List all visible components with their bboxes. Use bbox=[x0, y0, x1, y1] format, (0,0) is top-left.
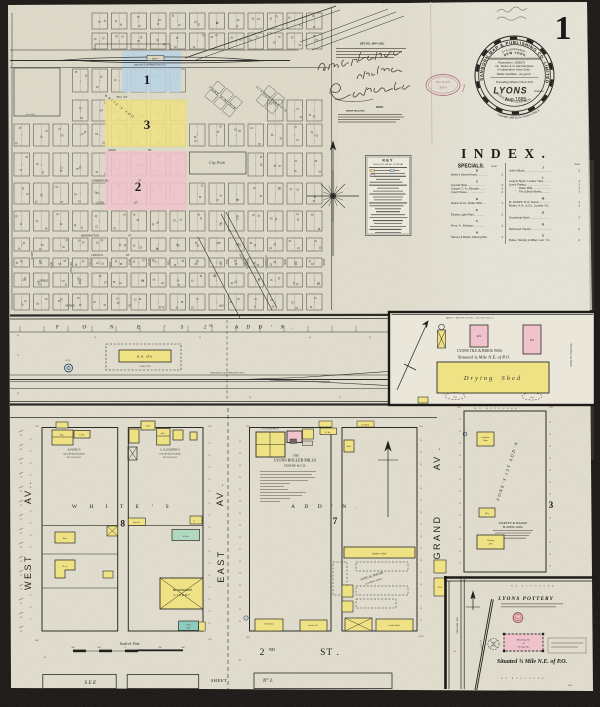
svg-text:25: 25 bbox=[459, 527, 461, 529]
svg-text:7: 7 bbox=[255, 135, 256, 137]
svg-text:25: 25 bbox=[420, 488, 422, 490]
svg-text:40: 40 bbox=[20, 617, 22, 619]
svg-text:25: 25 bbox=[209, 479, 211, 481]
svg-text:Lumber Shed: Lumber Shed bbox=[371, 553, 387, 556]
svg-text:W. Ho.: W. Ho. bbox=[325, 432, 331, 434]
svg-text:6: 6 bbox=[197, 135, 198, 137]
svg-text:8: 8 bbox=[177, 280, 178, 282]
svg-text:25: 25 bbox=[549, 542, 551, 544]
svg-text:E: E bbox=[476, 208, 478, 212]
svg-text:25: 25 bbox=[420, 524, 422, 526]
svg-text:5: 5 bbox=[216, 194, 217, 196]
svg-text:Kiln: Kiln bbox=[515, 618, 519, 620]
svg-text:3: 3 bbox=[60, 221, 61, 223]
svg-text:Kansas: Kansas bbox=[534, 89, 544, 93]
svg-text:Carpenter: Carpenter bbox=[481, 436, 490, 439]
svg-text:BELL: BELL bbox=[168, 258, 171, 265]
svg-text:25: 25 bbox=[420, 572, 422, 574]
svg-text:1: 1 bbox=[555, 10, 572, 47]
svg-text:25: 25 bbox=[209, 575, 211, 577]
svg-text:WALLACE & McPHERSON R.R.Co.: WALLACE & McPHERSON R.R.Co. bbox=[210, 372, 246, 375]
svg-text:PLANING MILL: PLANING MILL bbox=[503, 525, 524, 529]
svg-text:WATER FACILITIES.: WATER FACILITIES. bbox=[346, 110, 365, 113]
svg-text:750': 750' bbox=[208, 426, 213, 428]
svg-text:7: 7 bbox=[333, 516, 338, 526]
svg-text:6: 6 bbox=[99, 111, 100, 113]
svg-text:4: 4 bbox=[158, 21, 159, 23]
svg-text:25: 25 bbox=[239, 525, 241, 527]
svg-text:DEPOT: DEPOT bbox=[152, 59, 159, 61]
svg-text:Barn: Barn bbox=[63, 538, 67, 540]
svg-text:25: 25 bbox=[30, 571, 32, 573]
svg-text:25: 25 bbox=[420, 476, 422, 478]
svg-text:Planing: Planing bbox=[486, 540, 495, 542]
svg-text:A D D ’ N .: A D D ’ N . bbox=[291, 504, 361, 510]
svg-text:25: 25 bbox=[30, 439, 32, 441]
svg-text:4: 4 bbox=[138, 302, 139, 304]
svg-text:7: 7 bbox=[41, 221, 42, 223]
svg-text:A D D ’ N .: A D D ’ N . bbox=[234, 325, 297, 331]
svg-text:Situated ¾ Mile N.E. of P.O.: Situated ¾ Mile N.E. of P.O. bbox=[458, 355, 510, 360]
svg-text:7: 7 bbox=[99, 165, 100, 167]
svg-text:(SEE VOL. MAP of 88.): (SEE VOL. MAP of 88.) bbox=[360, 43, 385, 46]
svg-text:5: 5 bbox=[158, 280, 159, 282]
svg-text:B. Sto.: B. Sto. bbox=[183, 535, 190, 538]
svg-text:4: 4 bbox=[314, 302, 315, 304]
svg-text:750': 750' bbox=[419, 426, 424, 428]
svg-text:5: 5 bbox=[197, 21, 198, 23]
svg-text:4: 4 bbox=[294, 302, 295, 304]
svg-text:25: 25 bbox=[209, 539, 211, 541]
svg-text:2: 2 bbox=[138, 21, 139, 23]
svg-text:Moulding Rm: Moulding Rm bbox=[516, 639, 531, 642]
svg-text:Paint: Paint bbox=[185, 624, 191, 627]
svg-text:4: 4 bbox=[216, 135, 217, 137]
svg-text:Coal Shed: Coal Shed bbox=[361, 425, 369, 427]
svg-text:2: 2 bbox=[41, 135, 42, 137]
svg-text:3: 3 bbox=[197, 280, 198, 282]
svg-text:25: 25 bbox=[239, 561, 241, 563]
svg-text:4: 4 bbox=[80, 302, 81, 304]
svg-text:6: 6 bbox=[60, 263, 61, 265]
svg-text:6: 6 bbox=[99, 221, 100, 223]
svg-text:8: 8 bbox=[41, 263, 42, 265]
svg-text:750': 750' bbox=[35, 426, 40, 428]
svg-text:8: 8 bbox=[80, 81, 81, 83]
svg-text:2: 2 bbox=[216, 302, 217, 304]
svg-text:25: 25 bbox=[30, 559, 32, 561]
svg-text:25: 25 bbox=[549, 470, 551, 472]
svg-text:N O E X P O S U R E: N O E X P O S U R E bbox=[511, 586, 555, 588]
svg-text:Opera H.: Opera H. bbox=[133, 522, 141, 524]
svg-text:6: 6 bbox=[177, 41, 178, 43]
svg-text:25: 25 bbox=[549, 434, 551, 436]
svg-text:GRAIN ELEVATOR: GRAIN ELEVATOR bbox=[159, 452, 180, 455]
svg-text:50: 50 bbox=[249, 397, 251, 399]
svg-text:WEST: WEST bbox=[109, 261, 112, 268]
svg-text:N O E X P O S U R E.: N O E X P O S U R E. bbox=[475, 408, 520, 410]
svg-text:C.A.COOPER’S: C.A.COOPER’S bbox=[160, 448, 180, 452]
svg-text:6: 6 bbox=[60, 280, 61, 282]
svg-text:25: 25 bbox=[549, 566, 551, 568]
svg-text:25: 25 bbox=[209, 455, 211, 457]
svg-text:3: 3 bbox=[60, 245, 61, 247]
svg-text:2: 2 bbox=[60, 302, 61, 304]
svg-text:THE: THE bbox=[226, 259, 229, 264]
svg-text:ABOUT ¾ MILE N.E. OF CITY — M.: ABOUT ¾ MILE N.E. OF CITY — M. & McP. R.… bbox=[446, 317, 494, 320]
svg-text:25: 25 bbox=[209, 587, 211, 589]
svg-text:5: 5 bbox=[177, 221, 178, 223]
svg-text:75: 75 bbox=[20, 575, 22, 577]
svg-text:Clay: Clay bbox=[453, 397, 457, 399]
svg-text:50: 50 bbox=[17, 335, 19, 337]
svg-text:EAST: EAST bbox=[216, 549, 226, 583]
svg-text:25: 25 bbox=[30, 475, 32, 477]
svg-text:RAILROAD AVE.: RAILROAD AVE. bbox=[456, 616, 459, 634]
svg-text:DEWITT: DEWITT bbox=[31, 250, 34, 260]
svg-text:5: 5 bbox=[119, 263, 120, 265]
svg-text:DOANE & CO.: DOANE & CO. bbox=[284, 463, 306, 467]
svg-text:Shop: Shop bbox=[187, 628, 191, 630]
svg-text:5: 5 bbox=[177, 21, 178, 23]
svg-text:2 Independent Hose Carts: 2 Independent Hose Carts bbox=[497, 67, 530, 71]
svg-text:8: 8 bbox=[197, 194, 198, 196]
svg-text:25: 25 bbox=[239, 489, 241, 491]
svg-text:City Park: City Park bbox=[209, 160, 225, 165]
svg-text:2: 2 bbox=[119, 41, 120, 43]
svg-text:Kiln: Kiln bbox=[476, 335, 482, 338]
svg-text:25: 25 bbox=[30, 595, 32, 597]
svg-text:25: 25 bbox=[549, 506, 551, 508]
svg-text:25: 25 bbox=[420, 440, 422, 442]
svg-text:LYONS ROLLER MILLS: LYONS ROLLER MILLS bbox=[274, 458, 317, 463]
svg-text:Shop: Shop bbox=[483, 440, 487, 442]
svg-text:4: 4 bbox=[216, 280, 217, 282]
svg-text:25: 25 bbox=[459, 479, 461, 481]
svg-text:25: 25 bbox=[420, 560, 422, 562]
svg-text:DOUGLAS: DOUGLAS bbox=[70, 262, 73, 274]
svg-text:3: 3 bbox=[119, 81, 120, 83]
svg-text:CAP. 12,000 BUS.: CAP. 12,000 BUS. bbox=[67, 456, 82, 459]
svg-text:H: H bbox=[476, 230, 478, 234]
svg-text:RED: RED bbox=[284, 259, 287, 264]
svg-text:8: 8 bbox=[216, 221, 217, 223]
svg-text:25: 25 bbox=[420, 512, 422, 514]
svg-text:25: 25 bbox=[30, 499, 32, 501]
svg-text:25: 25 bbox=[420, 548, 422, 550]
svg-text:Aug.1888: Aug.1888 bbox=[505, 97, 527, 103]
svg-text:3: 3 bbox=[119, 21, 120, 23]
svg-text:4: 4 bbox=[41, 302, 42, 304]
svg-text:3: 3 bbox=[144, 117, 151, 132]
svg-text:7: 7 bbox=[80, 263, 81, 265]
svg-text:25: 25 bbox=[549, 446, 551, 448]
svg-text:Lumber Off.: Lumber Off. bbox=[308, 624, 318, 627]
svg-text:Reformed Church,..............: Reformed Church,........................… bbox=[509, 227, 552, 231]
svg-text:40: 40 bbox=[20, 561, 22, 563]
svg-text:9: 9 bbox=[216, 21, 217, 23]
svg-text:3: 3 bbox=[314, 263, 315, 265]
svg-text:2: 2 bbox=[138, 245, 139, 247]
svg-text:W.H.: W.H. bbox=[438, 587, 442, 589]
svg-text:4: 4 bbox=[138, 280, 139, 282]
svg-text:8: 8 bbox=[99, 41, 100, 43]
svg-text:2: 2 bbox=[314, 280, 315, 282]
svg-text:140': 140' bbox=[246, 637, 251, 639]
svg-text:BRANCH&SMITH: BRANCH&SMITH bbox=[173, 589, 192, 592]
svg-text:Situated ¾ Mile N.E. of P.O.: Situated ¾ Mile N.E. of P.O. bbox=[497, 659, 568, 665]
svg-text:Lyons Pottery.................: Lyons Pottery...........................… bbox=[509, 183, 550, 187]
svg-text:W H I T E ’ S: W H I T E ’ S bbox=[72, 504, 174, 510]
svg-text:ND: ND bbox=[208, 324, 214, 328]
svg-text:Flour Mill: Flour Mill bbox=[26, 114, 35, 116]
svg-text:Elev.: Elev. bbox=[60, 434, 65, 436]
svg-text:A.FONE’S: A.FONE’S bbox=[68, 448, 81, 452]
svg-text:1074: 1074 bbox=[419, 636, 425, 638]
svg-text:4: 4 bbox=[236, 263, 237, 265]
svg-text:5: 5 bbox=[138, 41, 139, 43]
svg-text:8: 8 bbox=[80, 194, 81, 196]
svg-text:F: F bbox=[476, 219, 478, 223]
svg-text:WASHINGTON: WASHINGTON bbox=[81, 234, 99, 238]
svg-text:25: 25 bbox=[209, 443, 211, 445]
svg-text:Elev.: Elev. bbox=[161, 433, 166, 435]
svg-text:MAIN: MAIN bbox=[109, 148, 116, 152]
svg-text:S: S bbox=[542, 234, 544, 238]
svg-text:25: 25 bbox=[239, 609, 241, 611]
svg-text:25: 25 bbox=[549, 422, 551, 424]
svg-text:25: 25 bbox=[459, 515, 461, 517]
svg-text:25: 25 bbox=[459, 455, 461, 457]
svg-text:25: 25 bbox=[459, 551, 461, 553]
svg-text:NOTE.: NOTE. bbox=[376, 105, 384, 109]
svg-text:ST.: ST. bbox=[128, 304, 132, 308]
svg-text:5: 5 bbox=[216, 263, 217, 265]
svg-text:AV .: AV . bbox=[215, 482, 225, 506]
svg-text:7: 7 bbox=[60, 135, 61, 137]
svg-text:2: 2 bbox=[204, 325, 207, 331]
svg-text:40: 40 bbox=[20, 631, 22, 633]
svg-text:3: 3 bbox=[255, 21, 256, 23]
svg-text:AVON: AVON bbox=[51, 261, 54, 268]
svg-text:50: 50 bbox=[369, 337, 371, 339]
svg-text:25: 25 bbox=[459, 467, 461, 469]
svg-text:S.E.: S.E. bbox=[568, 685, 573, 687]
svg-text:Mf’g: Mf’g bbox=[485, 513, 489, 515]
svg-text:750': 750' bbox=[549, 407, 554, 409]
svg-text:8: 8 bbox=[314, 245, 315, 247]
svg-text:5TH ST.: 5TH ST. bbox=[117, 95, 128, 99]
svg-text:8: 8 bbox=[255, 221, 256, 223]
svg-text:75: 75 bbox=[20, 589, 22, 591]
svg-text:4: 4 bbox=[314, 135, 315, 137]
svg-text:Central Hotel.................: Central Hotel........................ bbox=[451, 183, 486, 187]
svg-text:25: 25 bbox=[420, 620, 422, 622]
svg-text:MAY 28 1979: MAY 28 1979 bbox=[436, 81, 451, 84]
svg-text:Occidental Hotel,.............: Occidental Hotel,.......................… bbox=[509, 215, 551, 219]
svg-text:8: 8 bbox=[294, 165, 295, 167]
svg-text:Lumber Shed: Lumber Shed bbox=[388, 624, 399, 627]
svg-text:SHEET: SHEET bbox=[574, 164, 580, 166]
svg-text:3: 3 bbox=[275, 280, 276, 282]
svg-text:9: 9 bbox=[158, 245, 159, 247]
svg-text:3: 3 bbox=[80, 165, 81, 167]
svg-text:4: 4 bbox=[314, 165, 315, 167]
svg-text:F O N E ’ S: F O N E ’ S bbox=[55, 325, 191, 331]
svg-text:LIVERY: LIVERY bbox=[174, 593, 191, 597]
svg-text:25: 25 bbox=[239, 477, 241, 479]
svg-text:9: 9 bbox=[119, 302, 120, 304]
svg-text:1: 1 bbox=[144, 72, 151, 87]
svg-text:GRAND: GRAND bbox=[432, 514, 442, 559]
svg-text:2: 2 bbox=[314, 111, 315, 113]
svg-text:CLAY: CLAY bbox=[129, 259, 132, 265]
svg-text:Harvey & Marsh, Planing Mill..: Harvey & Marsh, Planing Mill.. bbox=[451, 235, 488, 239]
svg-text:40: 40 bbox=[20, 435, 22, 437]
svg-text:50: 50 bbox=[20, 463, 22, 465]
svg-text:3: 3 bbox=[158, 263, 159, 265]
svg-text:50: 50 bbox=[17, 355, 19, 357]
svg-text:AV .: AV . bbox=[23, 480, 33, 504]
svg-text:AV .: AV . bbox=[432, 446, 442, 470]
svg-text:4: 4 bbox=[21, 280, 22, 282]
svg-text:4: 4 bbox=[294, 245, 295, 247]
svg-text:7: 7 bbox=[255, 194, 256, 196]
svg-text:I N D E X .: I N D E X . bbox=[461, 146, 547, 161]
svg-text:6: 6 bbox=[80, 111, 81, 113]
svg-text:ND: ND bbox=[269, 647, 275, 652]
svg-text:GRAIN ELEVATOR: GRAIN ELEVATOR bbox=[63, 452, 84, 455]
svg-text:8: 8 bbox=[158, 41, 159, 43]
svg-text:25: 25 bbox=[30, 451, 32, 453]
svg-text:4: 4 bbox=[275, 165, 276, 167]
svg-text:7: 7 bbox=[236, 302, 237, 304]
svg-text:3: 3 bbox=[197, 221, 198, 223]
svg-text:6: 6 bbox=[197, 245, 198, 247]
svg-text:8: 8 bbox=[255, 302, 256, 304]
svg-text:W.Ho.: W.Ho. bbox=[347, 446, 352, 448]
svg-text:25: 25 bbox=[209, 503, 211, 505]
svg-text:50: 50 bbox=[309, 337, 311, 339]
svg-text:9: 9 bbox=[119, 221, 120, 223]
svg-text:“ Roller Mills,............: “ Roller Mills,....................... bbox=[515, 186, 551, 190]
svg-text:R. R. STA.: R. R. STA. bbox=[137, 355, 153, 359]
svg-text:25: 25 bbox=[239, 549, 241, 551]
svg-text:9: 9 bbox=[158, 302, 159, 304]
svg-text:Clay: Clay bbox=[492, 642, 496, 644]
svg-text:WALLACE & McPHERSON R.R.CO: WALLACE & McPHERSON R.R.CO bbox=[134, 63, 166, 66]
svg-text:5: 5 bbox=[236, 41, 237, 43]
svg-text:25: 25 bbox=[30, 607, 32, 609]
svg-text:750': 750' bbox=[208, 639, 213, 641]
svg-text:25: 25 bbox=[30, 547, 32, 549]
svg-text:25: 25 bbox=[209, 515, 211, 517]
svg-text:7: 7 bbox=[21, 221, 22, 223]
svg-text:25: 25 bbox=[20, 505, 22, 507]
svg-text:Dw’g: Dw’g bbox=[61, 566, 68, 568]
svg-text:25: 25 bbox=[420, 500, 422, 502]
svg-text:38474: 38474 bbox=[439, 86, 447, 90]
svg-text:5: 5 bbox=[255, 165, 256, 167]
svg-text:LINCOLN: LINCOLN bbox=[91, 253, 102, 257]
svg-text:9: 9 bbox=[236, 280, 237, 282]
svg-text:25: 25 bbox=[459, 563, 461, 565]
svg-text:7: 7 bbox=[138, 221, 139, 223]
svg-text:ST .: ST . bbox=[320, 648, 340, 658]
svg-text:25: 25 bbox=[239, 621, 241, 623]
svg-text:3: 3 bbox=[236, 21, 237, 23]
svg-text:W.TK.: W.TK. bbox=[65, 360, 71, 362]
svg-text:John’s Block..................: John’s Block............................… bbox=[509, 169, 551, 173]
svg-text:25: 25 bbox=[30, 523, 32, 525]
svg-text:WEST: WEST bbox=[23, 554, 33, 590]
svg-text:MOSES: MOSES bbox=[65, 304, 75, 308]
svg-text:7: 7 bbox=[99, 245, 100, 247]
svg-text:C’T’N & PLANTER’S B.: C’T’N & PLANTER’S B. bbox=[261, 428, 279, 431]
svg-text:8: 8 bbox=[41, 194, 42, 196]
svg-text:Sheds: Sheds bbox=[491, 645, 496, 647]
svg-text:SHEET: SHEET bbox=[491, 166, 497, 168]
svg-text:7: 7 bbox=[294, 280, 295, 282]
svg-text:25: 25 bbox=[209, 623, 211, 625]
svg-text:N O E X P O S U R E: N O E X P O S U R E bbox=[501, 678, 545, 680]
svg-text:8: 8 bbox=[41, 165, 42, 167]
svg-text:4: 4 bbox=[60, 194, 61, 196]
svg-text:40: 40 bbox=[20, 547, 22, 549]
svg-text:8: 8 bbox=[21, 302, 22, 304]
svg-text:8: 8 bbox=[21, 165, 22, 167]
svg-text:25: 25 bbox=[30, 583, 32, 585]
svg-text:25: 25 bbox=[549, 482, 551, 484]
svg-text:25: 25 bbox=[209, 563, 211, 565]
svg-text:PLATFORM: PLATFORM bbox=[140, 365, 151, 368]
svg-text:75: 75 bbox=[20, 477, 22, 479]
svg-text:25: 25 bbox=[239, 465, 241, 467]
svg-text:5: 5 bbox=[275, 245, 276, 247]
svg-text:SEE: SEE bbox=[84, 681, 97, 686]
svg-text:25: 25 bbox=[30, 463, 32, 465]
svg-text:3: 3 bbox=[197, 263, 198, 265]
svg-text:25: 25 bbox=[30, 487, 32, 489]
svg-text:3: 3 bbox=[21, 135, 22, 137]
svg-text:25: 25 bbox=[20, 491, 22, 493]
svg-text:Scale of Feet.: Scale of Feet. bbox=[120, 642, 141, 646]
svg-text:25: 25 bbox=[549, 554, 551, 556]
svg-text:Clay: Clay bbox=[530, 397, 534, 399]
svg-text:5: 5 bbox=[99, 21, 100, 23]
svg-text:50: 50 bbox=[94, 337, 96, 339]
svg-text:Doane & Co., Roller Mills.....: Doane & Co., Roller Mills...... bbox=[451, 201, 487, 205]
svg-text:7: 7 bbox=[294, 221, 295, 223]
svg-text:5: 5 bbox=[99, 263, 100, 265]
svg-text:ST.: ST. bbox=[78, 279, 82, 283]
svg-text:8: 8 bbox=[21, 245, 22, 247]
svg-text:50: 50 bbox=[339, 397, 341, 399]
svg-text:LYON: LYON bbox=[96, 201, 103, 205]
svg-text:7: 7 bbox=[216, 41, 217, 43]
svg-text:SHEET: SHEET bbox=[211, 678, 227, 683]
svg-text:Storage Rm: Storage Rm bbox=[518, 646, 530, 649]
svg-text:25: 25 bbox=[239, 597, 241, 599]
svg-text:25: 25 bbox=[239, 585, 241, 587]
svg-text:7: 7 bbox=[60, 165, 61, 167]
svg-text:Feed Store: Feed Store bbox=[264, 623, 273, 626]
svg-text:25: 25 bbox=[420, 452, 422, 454]
svg-text:Water Facilities not good: Water Facilities not good bbox=[497, 72, 531, 76]
svg-text:AVON: AVON bbox=[323, 258, 326, 265]
svg-text:5: 5 bbox=[236, 194, 237, 196]
svg-text:3: 3 bbox=[275, 21, 276, 23]
